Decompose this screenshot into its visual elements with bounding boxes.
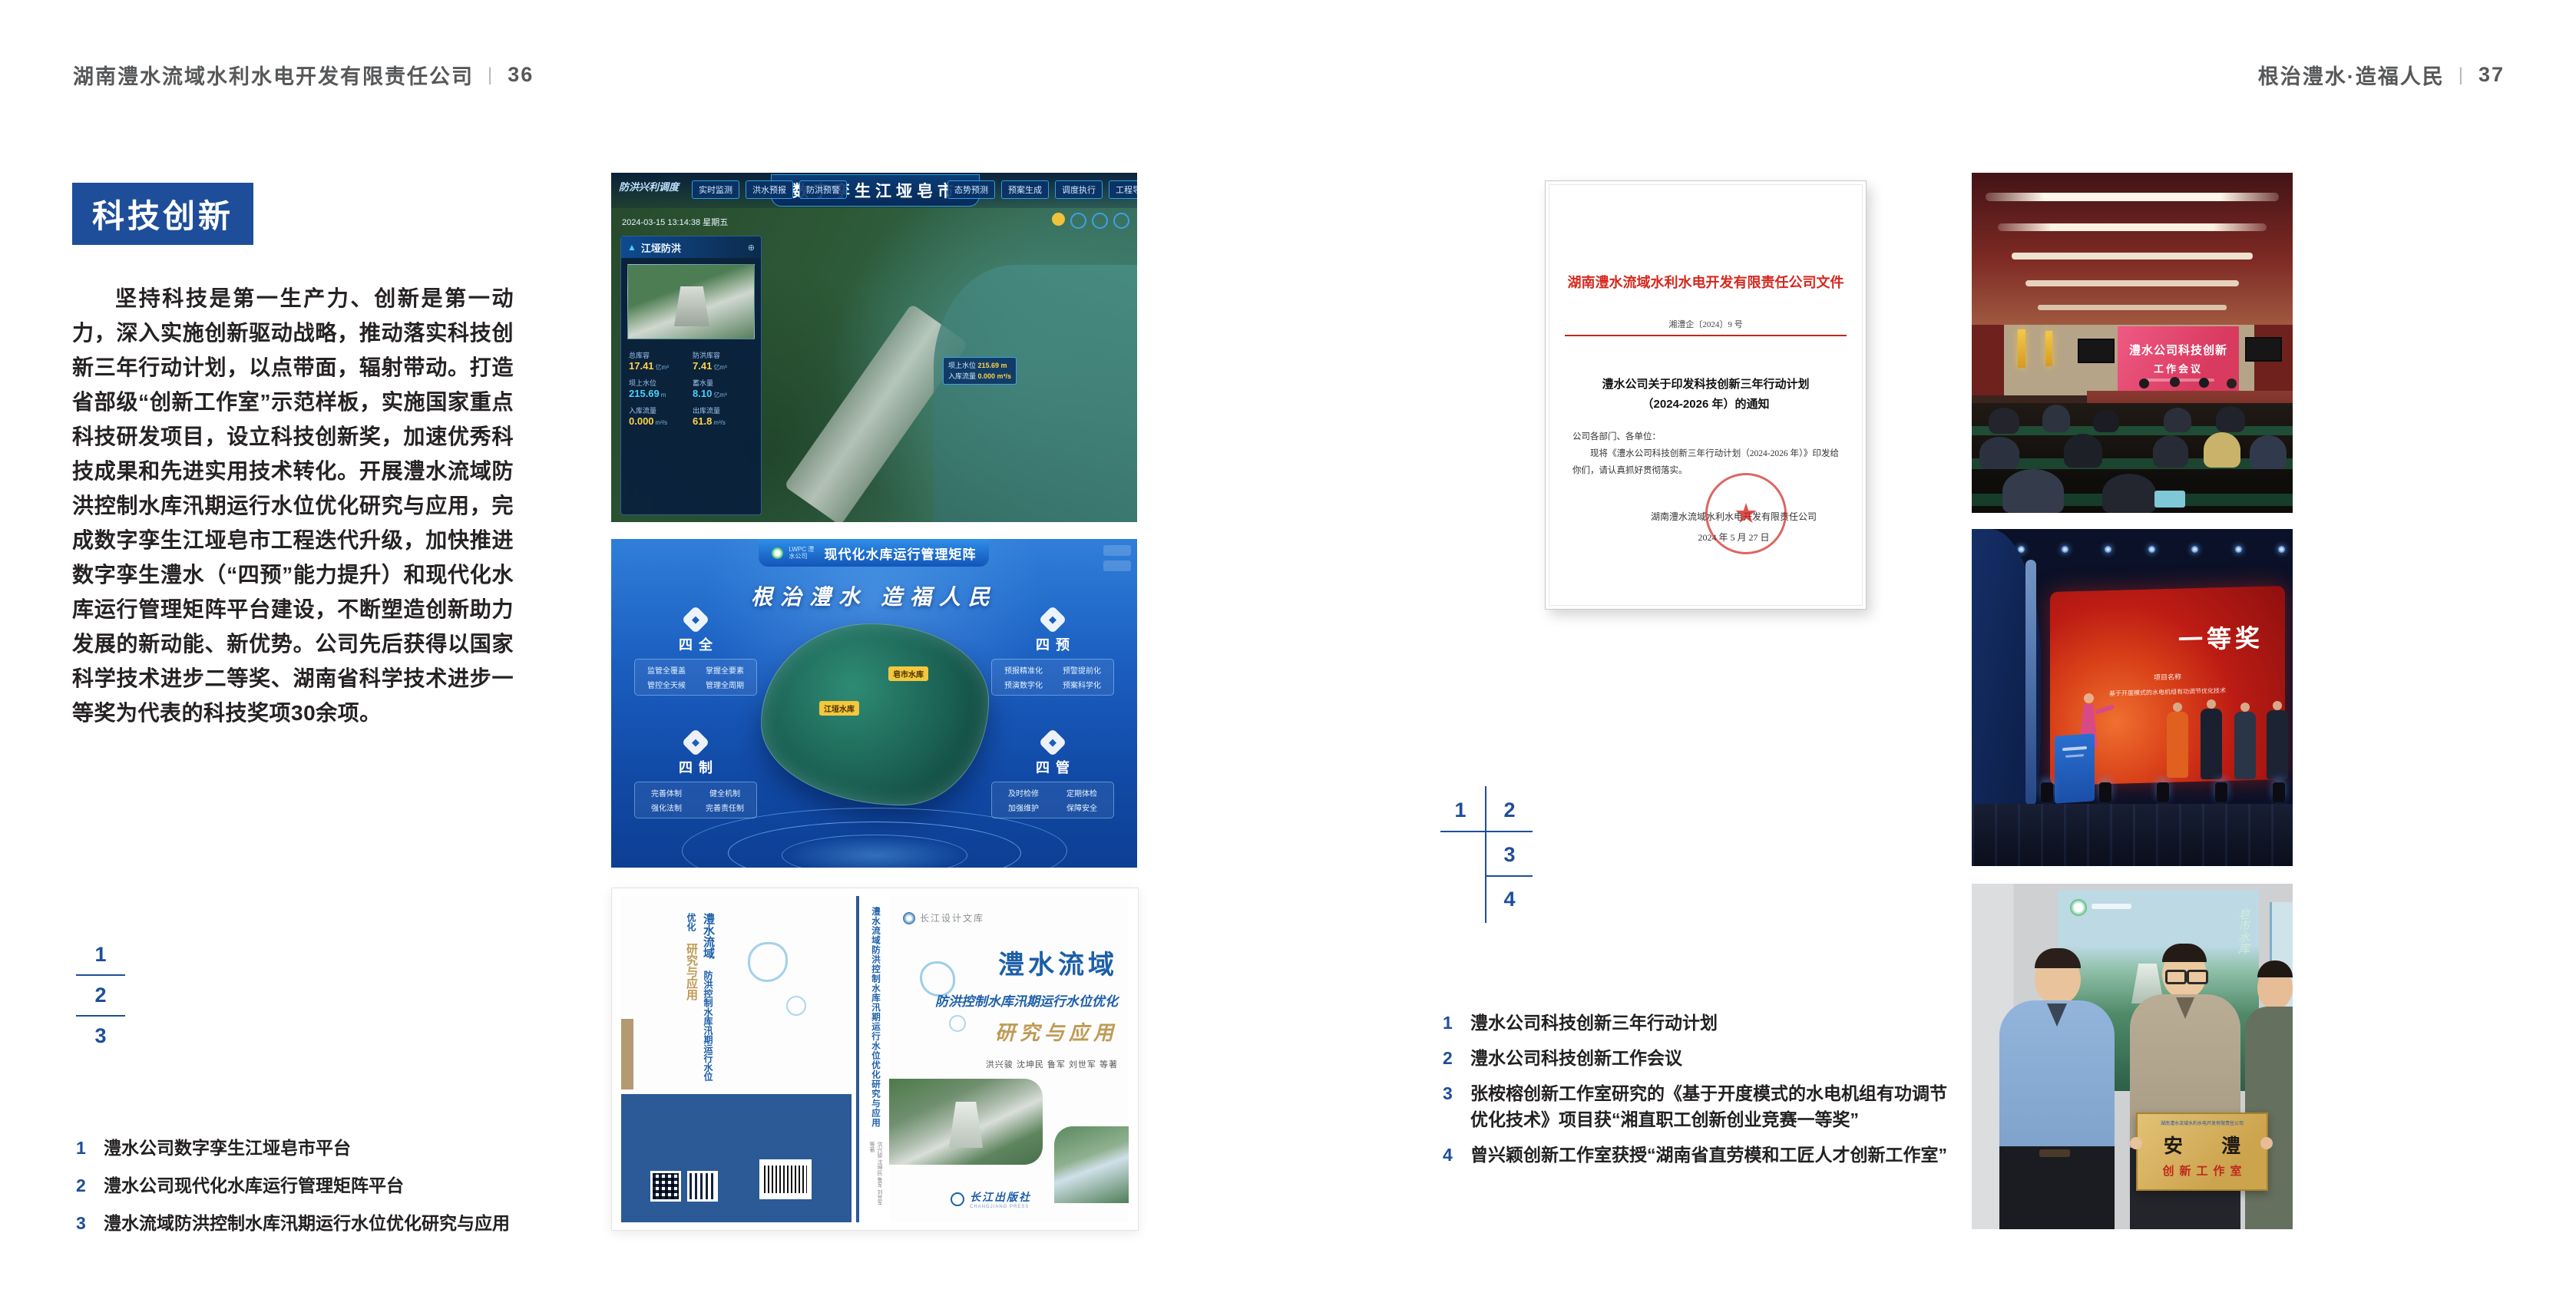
back-cover-blue-band (621, 1094, 852, 1222)
forecast-icon: ◆ (1039, 606, 1067, 634)
matrix-group-sizhi: ◆ 四制 完善体制健全机制 强化法制完善责任制 (634, 732, 757, 818)
header-divider: | (2459, 64, 2465, 86)
caption-row: 1 澧水公司科技创新三年行动计划 (1443, 1010, 1980, 1036)
person-blue-polo (1999, 1000, 2115, 1146)
caption-row: 2 澧水公司现代化水库运行管理矩阵平台 (76, 1172, 552, 1199)
podium-text-bar (2065, 754, 2084, 758)
left-page-header: 湖南澧水流域水利水电开发有限责任公司 | 36 (73, 60, 534, 90)
caption-text: 澧水公司数字孪生江垭皂市平台 (104, 1135, 351, 1161)
poster-caption: 皂市水库 (2235, 908, 2251, 1023)
expand-icon[interactable]: ⊕ (748, 243, 755, 253)
moving-head-light (2215, 782, 2227, 802)
layers-icon[interactable] (1070, 213, 1086, 229)
audience-person-foreground (2002, 469, 2064, 513)
speaker-head (2139, 379, 2149, 388)
qr-code (650, 1171, 681, 1202)
dam-photo (889, 1079, 1043, 1165)
caption-text: 澧水公司科技创新工作会议 (1470, 1045, 1682, 1071)
awardee-head (2273, 701, 2282, 710)
map-tag-water-level: 坝上水位 215.69 m 入库流量 0.000 m³/s (943, 357, 1017, 385)
map-label-jiangya: 江垭水库 (819, 701, 859, 716)
reservoir-water (934, 265, 1137, 522)
light-strip (1998, 223, 2267, 231)
floor-lights-row (2041, 782, 2285, 802)
dam-shape (949, 1102, 983, 1148)
awardee-suit (2201, 709, 2222, 779)
stage-light (2235, 546, 2242, 553)
host-head (2084, 693, 2094, 703)
figure-meeting-photo: 澧水公司科技创新 工作会议 (1972, 173, 2293, 513)
dam-photo-small (1054, 1126, 1129, 1203)
publisher-name-en: CHANGJIANG PRESS (970, 1205, 1031, 1209)
compass-icon[interactable] (1092, 213, 1108, 229)
spine-title: 澧水流域防洪控制水库汛期运行水位优化研究与应用 (869, 907, 881, 1137)
back-cover-tab (621, 1019, 633, 1089)
barcode (759, 1159, 812, 1199)
innovation-studio-plaque: 湖南澧水流域水利水电开发有限责任公司 安 澧 创新工作室 (2136, 1113, 2268, 1191)
caption-number: 4 (1443, 1142, 1460, 1168)
stage-light (2148, 546, 2155, 553)
index-rule (1440, 831, 1533, 832)
award-screen-title: 一等奖 (2050, 586, 2285, 660)
publisher-name: 长江出版社 (970, 1189, 1031, 1205)
collapse-button[interactable] (1103, 545, 1131, 556)
left-index-column: 1 2 3 (76, 943, 125, 1048)
right-page-header: 根治澧水·造福人民 | 37 (2258, 60, 2505, 90)
light-strip (1986, 193, 2279, 201)
stat-label: 蓄水量 (693, 378, 753, 388)
publisher-block: 长江出版社 CHANGJIANG PRESS (951, 1189, 1031, 1209)
index-number: 2 (1496, 798, 1523, 822)
award-screen-sub1: 项目名称 (2050, 669, 2285, 685)
watershed-map: 皂市水库 江垭水库 (761, 623, 989, 805)
section-title-box: 科技创新 (72, 183, 253, 245)
dashboard-tabs-right: 态势预测 预案生成 调度执行 工程导览 (947, 180, 1137, 199)
dashboard-user-icons (1052, 213, 1129, 229)
stage-panel-edge (2025, 560, 2036, 805)
series-name: 长江设计文库 (920, 911, 984, 924)
light-strip (2025, 280, 2239, 286)
page-number-left: 36 (508, 63, 534, 87)
book-spine: 澧水流域防洪控制水库汛期运行水位优化研究与应用 洪兴骏 沈坤民 鲁军 刘世军 等… (856, 896, 892, 1222)
speaker-head (2199, 378, 2209, 388)
index-rule (76, 974, 125, 976)
book-title-tail: 研究与应用 (934, 1017, 1118, 1046)
figure-group-photo: 皂市水库 湖南澧水流域水利水电开发有限责任公司 安 澧 创新工作室 (1972, 884, 2293, 1229)
tab-situation-forecast[interactable]: 态势预测 (947, 180, 995, 199)
document-number: 湘澧企〔2024〕9 号 (1546, 318, 1866, 330)
caption-number: 1 (76, 1135, 93, 1161)
stamp-star-icon: ★ (1734, 498, 1758, 530)
lwpc-logo-icon (772, 547, 783, 559)
book-authors: 洪兴骏 沈坤民 鲁军 刘世军 等著 (934, 1058, 1118, 1070)
plaque-subtitle: 创新工作室 (2138, 1162, 2267, 1179)
refresh-icon[interactable] (1113, 213, 1129, 229)
moving-head-light (2273, 782, 2285, 802)
caption-row: 3 张桉榕创新工作室研究的《基于开度模式的水电机组有功调节 优化技术》项目获“湘… (1443, 1080, 1980, 1132)
audience-person-yellow (2204, 432, 2240, 468)
stat-value: 8.10亿m³ (693, 388, 753, 399)
press-logo-icon (903, 912, 915, 924)
stage-light (2018, 546, 2025, 553)
dashboard-timestamp: 2024-03-15 13:14:38 星期五 (622, 216, 728, 228)
caption-text: 张桉榕创新工作室研究的《基于开度模式的水电机组有功调节 优化技术》项目获“湘直职… (1470, 1080, 1947, 1132)
audience-person (2064, 434, 2102, 468)
index-rule (76, 1015, 125, 1017)
tab-flood-warning[interactable]: 防洪预警 (799, 180, 847, 199)
series-badge: 长江设计文库 (903, 911, 984, 924)
hand (2260, 1137, 2273, 1149)
stat-value: 17.41亿m³ (629, 360, 689, 372)
caption-row: 3 澧水流域防洪控制水库汛期运行水位优化研究与应用 (76, 1210, 552, 1236)
audience-person (2093, 409, 2119, 432)
speaker-head (2227, 379, 2237, 388)
podium-text-bar (2062, 746, 2086, 751)
body-paragraph: 坚持科技是第一生产力、创新是第一动力，深入实施创新驱动战略，推动落实科技创新三年… (72, 281, 514, 730)
matrix-logo-text: LWPC 澧水公司 (789, 546, 818, 560)
index-number: 1 (1447, 798, 1474, 822)
tab-project-tour[interactable]: 工程导览 (1109, 180, 1137, 199)
hand (2130, 1137, 2142, 1149)
wall-lamp (2018, 329, 2025, 368)
caption-number: 3 (1443, 1080, 1460, 1106)
caption-row: 4 曾兴颖创新工作室获授“湖南省直劳模和工匠人才创新工作室” (1443, 1142, 1980, 1168)
slogan-text: 根治澧水·造福人民 (2258, 60, 2445, 90)
document-title: 澧水公司关于印发科技创新三年行动计划 （2024-2026 年）的通知 (1546, 375, 1866, 415)
wall-lamp (2045, 331, 2052, 366)
company-name: 湖南澧水流域水利水电开发有限责任公司 (73, 60, 474, 90)
dashboard-tabs-left: 实时监测 洪水预报 防洪预警 (692, 180, 847, 199)
poster-logo-text-bar (2092, 904, 2131, 909)
awardee-head (2240, 703, 2250, 712)
page-number-right: 37 (2478, 63, 2505, 87)
front-title-block: 澧水流域 防洪控制水库汛期运行水位优化 研究与应用 洪兴骏 沈坤民 鲁军 刘世军… (934, 944, 1118, 1070)
belt (2039, 1149, 2070, 1157)
wall-tv (2078, 339, 2115, 363)
water-droplet (748, 942, 788, 982)
poster-logo-icon (2070, 899, 2087, 916)
stat-label: 出库流量 (693, 405, 753, 415)
speaker-head (2170, 377, 2180, 387)
back-cover-title: 澧水流域 防洪控制水库汛期运行水位优化 研究与应用 (683, 913, 716, 1089)
awardee-suit (2234, 712, 2256, 779)
section-title: 科技创新 (72, 183, 253, 245)
caption-number: 3 (76, 1210, 93, 1236)
stat-value: 7.41亿m³ (693, 360, 753, 372)
official-stamp: ★ (1705, 473, 1787, 554)
glasses-icon (2165, 970, 2187, 984)
more-button[interactable] (1103, 560, 1131, 571)
moving-head-light (2157, 782, 2169, 802)
tab-dispatch-execution[interactable]: 调度执行 (1055, 180, 1103, 199)
figure-matrix-platform: LWPC 澧水公司 现代化水库运行管理矩阵 根治澧水 造福人民 皂市水库 江垭水… (611, 539, 1137, 868)
plaque-header: 湖南澧水流域水利水电开发有限责任公司 (2138, 1119, 2267, 1126)
panel-stats: 总库容17.41亿m³ 防洪库容7.41亿m³ 坝上水位215.69m 蓄水量8… (621, 346, 761, 431)
document-body-text: 现将《澧水公司科技创新三年行动计划（2024-2026 年）》印发给你们，请认真… (1572, 445, 1839, 479)
stat-value: 0.000m³/s (629, 415, 689, 427)
stage-light (2062, 546, 2068, 553)
stat-value: 215.69m (629, 388, 689, 399)
left-captions: 1 澧水公司数字孪生江垭皂市平台 2 澧水公司现代化水库运行管理矩阵平台 3 澧… (76, 1135, 552, 1236)
stage-light (2105, 546, 2111, 553)
reflective-floor (1972, 804, 2293, 866)
dashboard-emblem: 防洪兴利调度 (619, 179, 679, 193)
meeting-screen: 澧水公司科技创新 工作会议 (2118, 326, 2239, 397)
figure-award-photo: 一等奖 项目名称 基于开度模式的水电机组有功调节优化技术 (1972, 529, 2293, 866)
book-title-sub: 防洪控制水库汛期运行水位优化 (934, 990, 1118, 1010)
qr-code (687, 1171, 718, 1202)
water-droplet (786, 996, 806, 1016)
dam-shape (674, 286, 709, 326)
dashboard-left-panel: ▲ 江垭防洪 ⊕ 总库容17.41亿m³ 防洪库容7.41亿m³ 坝上水位215… (620, 236, 762, 515)
audience-person (2042, 405, 2070, 432)
light-strip (2012, 253, 2253, 260)
person-trousers (1999, 1146, 2115, 1229)
stat-label: 防洪库容 (693, 350, 753, 360)
awardee-suit (2267, 710, 2288, 779)
awardee-head (2173, 703, 2182, 712)
tab-realtime-monitoring[interactable]: 实时监测 (692, 180, 739, 199)
caption-row: 1 澧水公司数字孪生江垭皂市平台 (76, 1135, 552, 1161)
plaque-title: 安 澧 (2138, 1131, 2267, 1159)
audience-person (2250, 435, 2287, 469)
map-label-zaoshi: 皂市水库 (888, 666, 928, 681)
polo-collar (2176, 997, 2194, 1019)
figure-official-document: 湖南澧水流域水利水电开发有限责任公司文件 湘澧企〔2024〕9 号 澧水公司关于… (1545, 180, 1867, 610)
index-number: 3 (76, 1024, 125, 1048)
brochure-spread: 湖南澧水流域水利水电开发有限责任公司 | 36 科技创新 坚持科技是第一生产力、… (0, 0, 2576, 1306)
right-captions: 1 澧水公司科技创新三年行动计划 2 澧水公司科技创新工作会议 3 张桉榕创新工… (1443, 1010, 1980, 1168)
caption-text: 曾兴颖创新工作室获授“湖南省直劳模和工匠人才创新工作室” (1470, 1142, 1947, 1168)
index-number: 4 (1496, 888, 1523, 911)
moving-head-light (2041, 782, 2053, 802)
stat-value: 61.8m³/s (693, 415, 753, 427)
table-cover-green (1972, 426, 2293, 435)
dam-thumbnail (627, 264, 755, 339)
header-divider: | (488, 64, 494, 86)
document-red-header: 湖南澧水流域水利水电开发有限责任公司文件 (1562, 272, 1850, 292)
stage-lights-row (2018, 546, 2285, 553)
audience-person (2164, 408, 2191, 432)
book-front-cover: 长江设计文库 澧水流域 防洪控制水库汛期运行水位优化 研究与应用 洪兴骏 沈坤民… (889, 896, 1129, 1222)
glasses-icon (2187, 970, 2208, 984)
building-icon: ◆ (682, 729, 710, 757)
monitor-icon: ◆ (682, 606, 710, 634)
figure-book-cover: 澧水流域 防洪控制水库汛期运行水位优化 研究与应用 澧水流域防洪控制水库汛期运行… (611, 888, 1139, 1231)
stage-light (2278, 546, 2285, 553)
matrix-header-plate: LWPC 澧水公司 现代化水库运行管理矩阵 (759, 539, 989, 567)
publisher-logo-icon (951, 1192, 964, 1206)
document-red-rule (1565, 335, 1847, 336)
audience-person-foreground (2102, 474, 2156, 513)
audience-person (2216, 406, 2245, 432)
stat-label: 总库容 (629, 350, 689, 360)
spine-authors: 洪兴骏 沈坤民 鲁军 刘世军 等著 (868, 1142, 883, 1211)
anchor-icon: ▲ (627, 242, 637, 253)
stat-label: 坝上水位 (629, 378, 689, 388)
book-back-cover: 澧水流域 防洪控制水库汛期运行水位优化 研究与应用 (621, 896, 852, 1222)
matrix-group-siquan: ◆ 四全 监管全覆盖掌握全要素 管控全天候管理全周期 (634, 610, 757, 696)
caption-text: 澧水流域防洪控制水库汛期运行水位优化研究与应用 (104, 1210, 510, 1236)
caption-number: 2 (1443, 1045, 1460, 1071)
panel-title: 江垭防洪 (641, 240, 681, 255)
tissue-box (2154, 491, 2185, 508)
caption-number: 2 (76, 1172, 93, 1199)
index-number: 1 (76, 943, 125, 967)
tab-plan-generation[interactable]: 预案生成 (1001, 180, 1049, 199)
matrix-title: 现代化水库运行管理矩阵 (825, 544, 977, 563)
matrix-slogan: 根治澧水 造福人民 (611, 580, 1137, 611)
matrix-group-siguan: ◆ 四管 及时检修定期体检 加强维护保障安全 (991, 732, 1114, 818)
awardee-head (2207, 699, 2216, 709)
user-icon[interactable] (1052, 213, 1065, 226)
caption-text: 澧水公司科技创新三年行动计划 (1470, 1010, 1718, 1036)
tab-flood-forecast[interactable]: 洪水预报 (746, 180, 793, 199)
audience-person (1989, 408, 2019, 434)
index-number: 2 (76, 984, 125, 1007)
document-body: 公司各部门、各单位： 现将《澧水公司科技创新三年行动计划（2024-2026 年… (1572, 428, 1839, 479)
index-number: 3 (1496, 843, 1523, 867)
caption-number: 1 (1443, 1010, 1460, 1036)
polo-collar (2047, 1003, 2067, 1027)
audience-person (2153, 435, 2188, 468)
document-salutation: 公司各部门、各单位： (1572, 428, 1839, 445)
meeting-screen-line2: 工作会议 (2154, 361, 2203, 375)
table-cover-green (1972, 458, 2293, 469)
shield-icon: ◆ (1039, 729, 1067, 757)
matrix-toolbar (1103, 545, 1131, 571)
caption-row: 2 澧水公司科技创新工作会议 (1443, 1045, 1980, 1071)
audience-person (1979, 437, 2019, 469)
meeting-screen-line1: 澧水公司科技创新 (2129, 342, 2227, 358)
matrix-group-siyu: ◆ 四预 预报精准化预警提前化 预演数字化预案科学化 (991, 610, 1114, 696)
right-index-grid: 1 2 3 4 (1440, 786, 1534, 926)
moving-head-light (2099, 782, 2111, 802)
light-strip (2038, 305, 2227, 310)
figure-digital-twin-dashboard: 数字孪生江垭皂市 防洪兴利调度 实时监测 洪水预报 防洪预警 态势预测 预案生成… (611, 173, 1137, 522)
wall-tv (2245, 337, 2282, 362)
stage-light (2191, 546, 2198, 553)
index-vertical-rule (1485, 786, 1486, 923)
book-title-main: 澧水流域 (934, 944, 1118, 981)
stat-label: 入库流量 (629, 405, 689, 415)
index-rule (1485, 875, 1533, 877)
awardee-orange-jacket (2167, 712, 2188, 778)
caption-text: 澧水公司现代化水库运行管理矩阵平台 (104, 1172, 404, 1199)
